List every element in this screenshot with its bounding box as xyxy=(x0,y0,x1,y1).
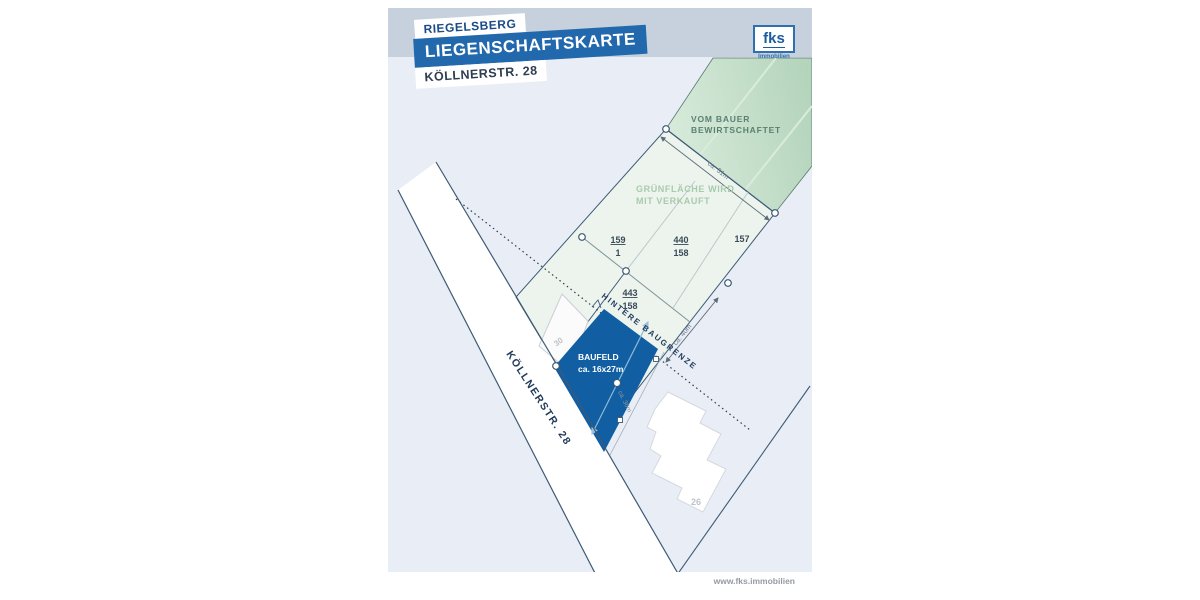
farmed-label-line1: VOM BAUER xyxy=(691,114,750,124)
farmed-label-line2: BEWIRTSCHAFTET xyxy=(691,125,781,135)
survey-point xyxy=(614,380,621,387)
baufeld-size-label: ca. 16x27m xyxy=(578,364,624,374)
cadastral-map: ca. 31m ca. 40m 30 BAUFELD ca. 16x27m ca… xyxy=(388,57,812,572)
logo-box: fks xyxy=(753,25,795,53)
company-logo: fks Immobilien xyxy=(753,25,795,60)
parcel-denominator: 1 xyxy=(615,248,620,258)
survey-mark xyxy=(654,357,659,362)
title-block: RIEGELSBERG LIEGENSCHAFTSKARTE KÖLLNERST… xyxy=(412,6,649,89)
survey-mark xyxy=(618,418,623,423)
parcel-denominator: 158 xyxy=(673,248,688,258)
survey-point xyxy=(579,234,586,241)
screenshot-canvas: RIEGELSBERG LIEGENSCHAFTSKARTE KÖLLNERST… xyxy=(0,0,1200,600)
survey-point xyxy=(553,363,560,370)
survey-point xyxy=(725,280,732,287)
logo-text: fks xyxy=(763,31,785,48)
parcel-number: 443 xyxy=(622,288,637,298)
logo-subtitle: Immobilien xyxy=(753,54,795,60)
parcel-number: 159 xyxy=(610,235,625,245)
website-link: www.fks.immobilien xyxy=(714,576,795,586)
green-area-label-line2: MIT VERKAUFT xyxy=(636,196,710,206)
parcel-number: 440 xyxy=(673,235,688,245)
building-26-label: 26 xyxy=(691,497,701,507)
parcel-denominator: 158 xyxy=(622,301,637,311)
map-sheet: RIEGELSBERG LIEGENSCHAFTSKARTE KÖLLNERST… xyxy=(388,0,812,600)
survey-point xyxy=(772,210,779,217)
parcel-number: 157 xyxy=(734,234,749,244)
green-area-label-line1: GRÜNFLÄCHE WIRD xyxy=(636,184,735,194)
survey-point xyxy=(663,126,670,133)
baufeld-label: BAUFELD xyxy=(578,352,619,362)
survey-point xyxy=(623,268,630,275)
